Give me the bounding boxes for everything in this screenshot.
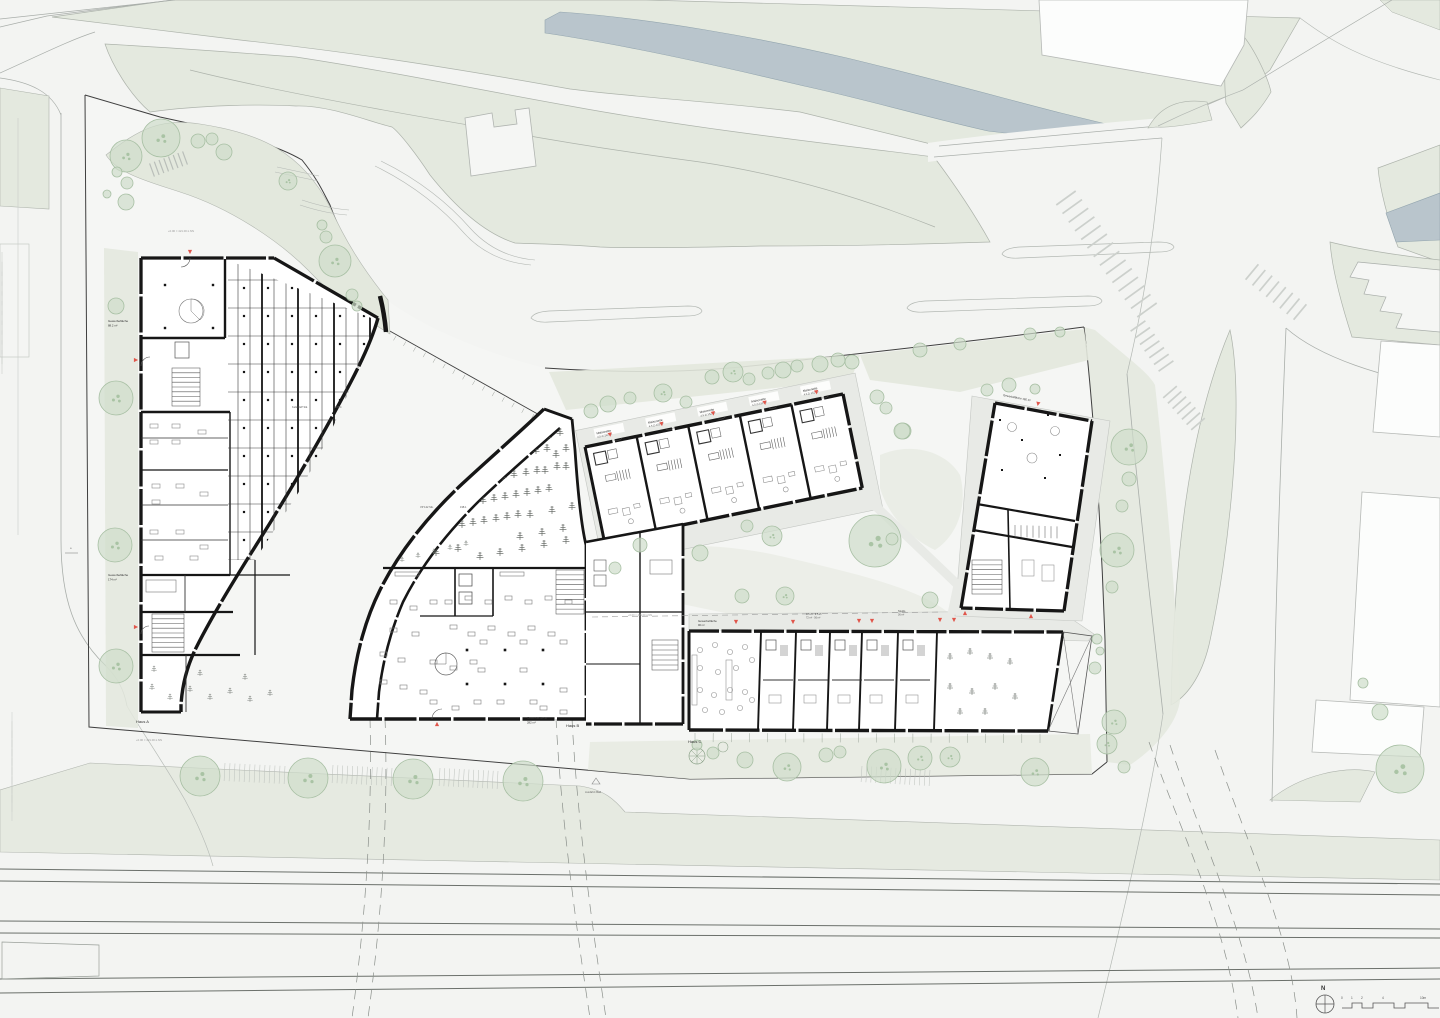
svg-text:+0.00 = 421.00 ü.NN: +0.00 = 421.00 ü.NN: [136, 738, 162, 742]
svg-text:Haus B: Haus B: [566, 723, 579, 728]
svg-text:Keller EP Stk.: Keller EP Stk.: [292, 405, 308, 409]
svg-text:+0.00 = 421.00 ü.NN: +0.00 = 421.00 ü.NN: [168, 229, 194, 233]
svg-text:90 m²: 90 m²: [698, 623, 705, 627]
svg-text:36 m²: 36 m²: [898, 614, 904, 617]
svg-text:268.4: 268.4: [335, 405, 342, 409]
svg-text:72 m² · 56 m²: 72 m² · 56 m²: [806, 617, 821, 620]
svg-text:3.5 Zi · 2.5 Zi: 3.5 Zi · 2.5 Zi: [806, 612, 822, 616]
svg-text:Haus A: Haus A: [136, 719, 149, 724]
svg-text:Gewerbefläche: Gewerbefläche: [527, 716, 548, 720]
svg-text:88.2 m²: 88.2 m²: [108, 324, 118, 328]
svg-text:VP 122 Stk.: VP 122 Stk.: [420, 505, 434, 509]
svg-text:10m: 10m: [1420, 996, 1427, 1000]
svg-text:1: 1: [1351, 996, 1353, 1000]
svg-text:Gewerbefläche: Gewerbefläche: [698, 619, 717, 623]
svg-text:198.1: 198.1: [460, 505, 467, 509]
svg-text:2: 2: [1361, 996, 1363, 1000]
svg-text:N: N: [1321, 986, 1325, 992]
svg-text:+0.00 = 421.00 ü.NN: +0.00 = 421.00 ü.NN: [628, 613, 652, 617]
svg-text:282 m²: 282 m²: [527, 721, 536, 725]
svg-text:Gewerbefläche: Gewerbefläche: [108, 319, 129, 323]
svg-text:4: 4: [1382, 996, 1384, 1000]
svg-text:Ausfahrt Bad: Ausfahrt Bad: [585, 790, 602, 794]
svg-text:174 m²: 174 m²: [108, 578, 117, 582]
svg-text:0: 0: [1341, 996, 1343, 1000]
svg-text:Studio: Studio: [898, 609, 906, 613]
svg-text:Gewerbefläche: Gewerbefläche: [108, 573, 129, 577]
svg-text:Haus C: Haus C: [688, 739, 701, 744]
